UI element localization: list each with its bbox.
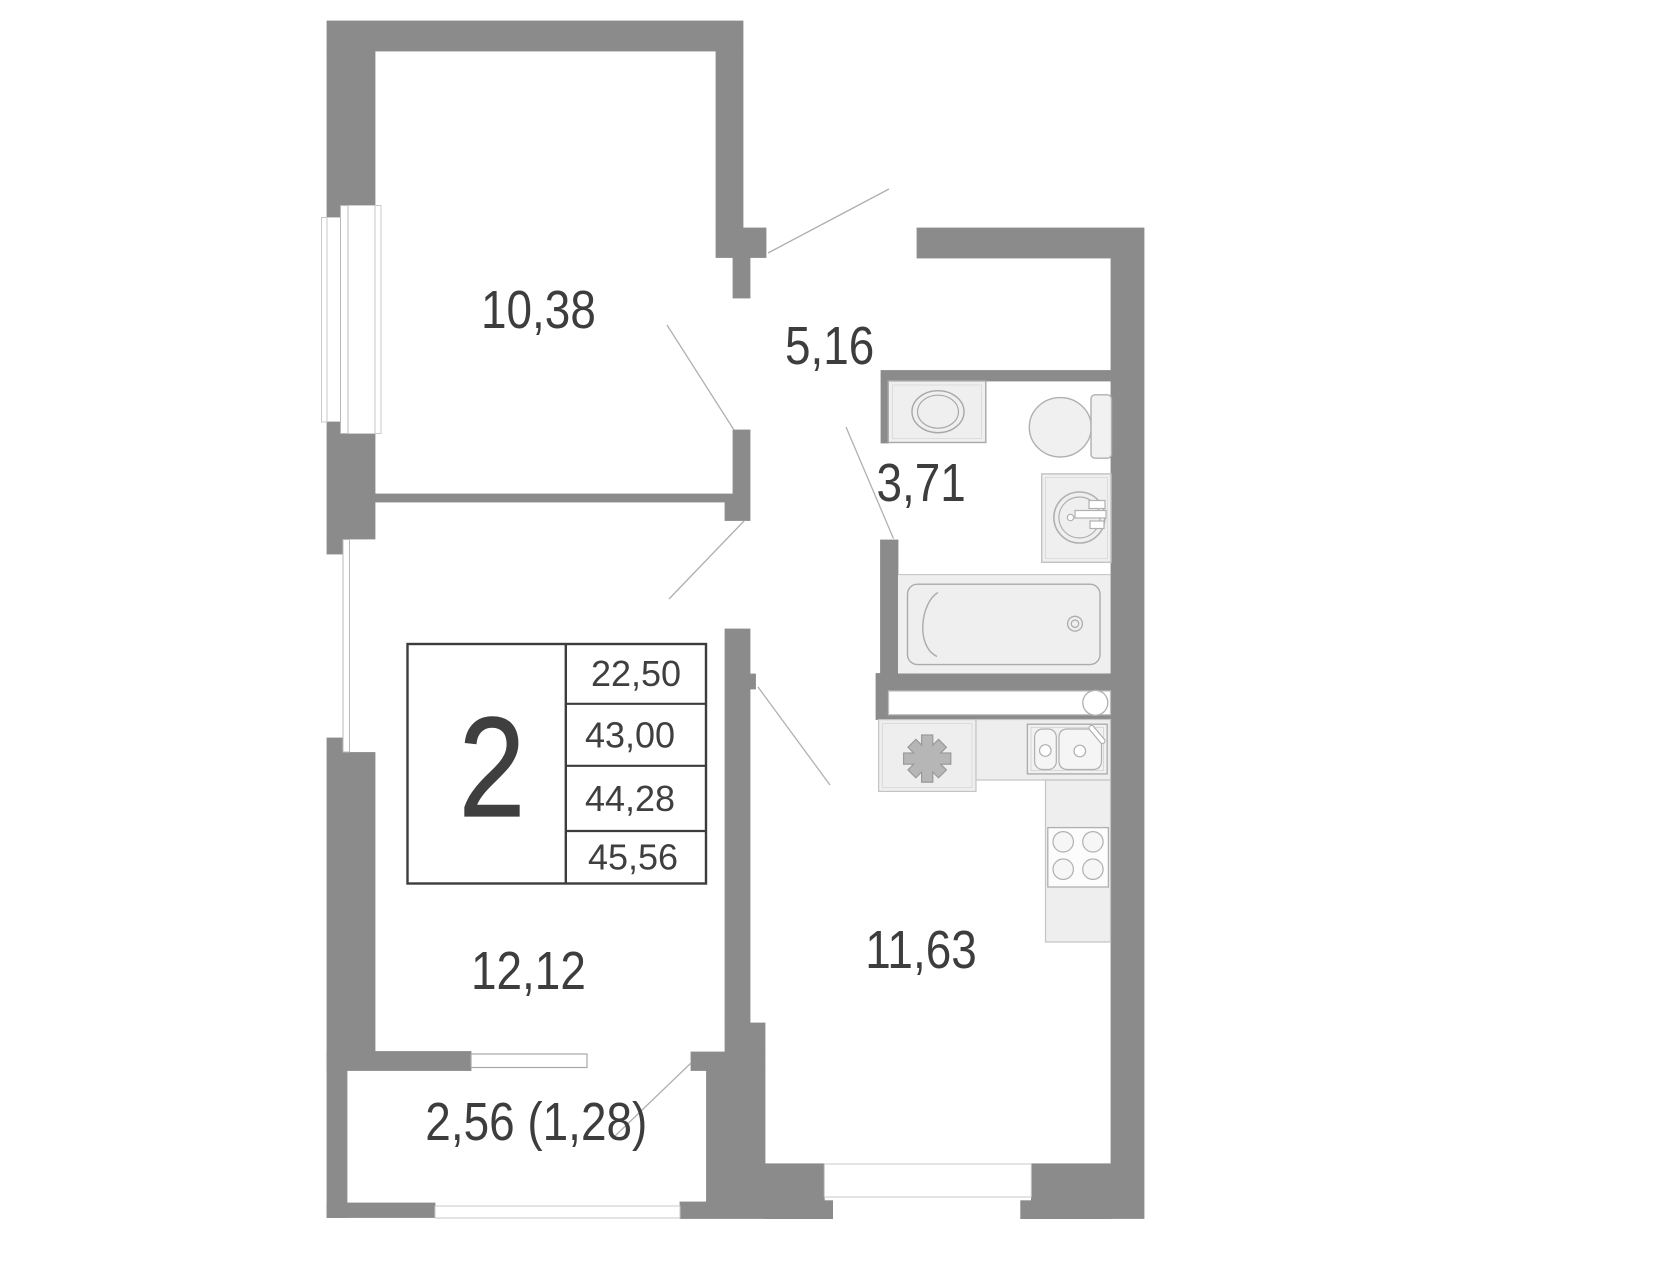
svg-text:3,71: 3,71 [877,453,966,513]
svg-text:22,50: 22,50 [591,653,681,694]
svg-text:2,56 (1,28): 2,56 (1,28) [425,1092,647,1152]
svg-text:5,16: 5,16 [785,316,874,376]
svg-text:12,12: 12,12 [471,941,586,1001]
svg-text:11,63: 11,63 [865,920,976,980]
svg-text:45,56: 45,56 [588,837,678,878]
svg-text:43,00: 43,00 [585,715,675,756]
svg-text:10,38: 10,38 [481,280,596,340]
svg-text:44,28: 44,28 [585,778,675,819]
svg-text:2: 2 [459,687,525,846]
